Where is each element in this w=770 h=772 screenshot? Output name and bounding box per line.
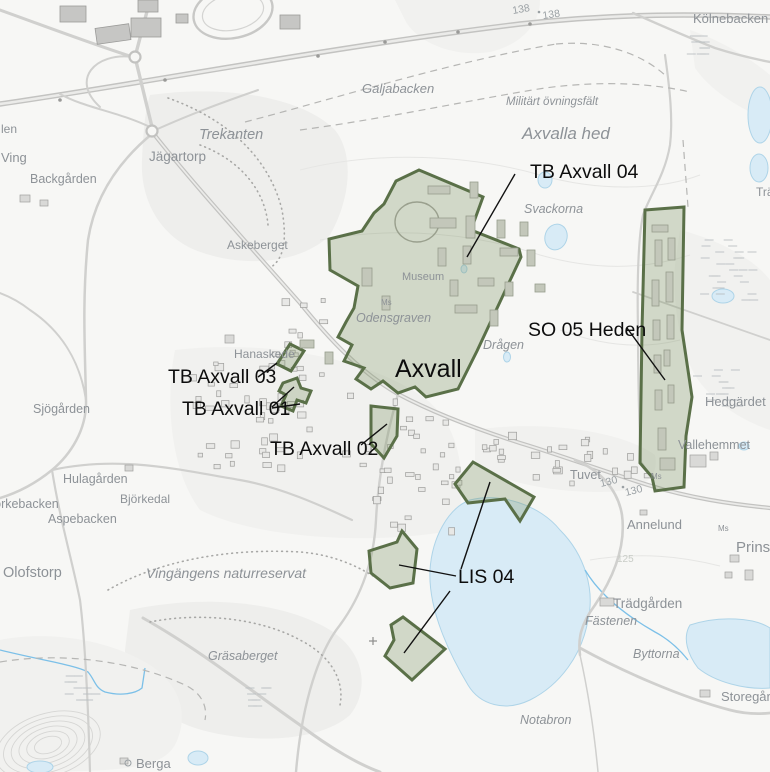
place-label: Annelund xyxy=(627,517,682,532)
place-label: Galjabacken xyxy=(362,81,434,96)
place-label: Ms xyxy=(381,298,392,307)
place-label: Drågen xyxy=(483,338,524,352)
place-label: Fästenen xyxy=(585,614,637,628)
place-label: Aspebacken xyxy=(48,512,117,526)
place-label: Backgården xyxy=(30,172,97,186)
place-label: Storegården xyxy=(721,689,770,704)
place-label: Vallehemmet xyxy=(678,438,751,452)
place-label: Björkebacken xyxy=(0,497,59,511)
zone-label-tb-axvall-01: TB Axvall 01 xyxy=(182,398,290,420)
place-label: Hulagården xyxy=(63,472,128,486)
elevation-dot xyxy=(538,11,541,14)
place-label: Ving xyxy=(1,150,27,165)
pond xyxy=(188,751,208,765)
elevation-dot xyxy=(622,486,625,489)
pond xyxy=(748,87,770,143)
place-label: Hanaskede xyxy=(234,347,295,361)
place-label: Notabron xyxy=(520,713,571,727)
town-label-axvall: Axvall xyxy=(395,355,462,383)
pond xyxy=(750,154,768,182)
zone-label-tb-axvall-03: TB Axvall 03 xyxy=(168,366,276,388)
map-screenshot: Kölnebacken Galjabacken Militärt övnings… xyxy=(0,0,770,772)
place-label: Sjögården xyxy=(33,402,90,416)
roundabout xyxy=(130,52,141,63)
place-label: Tuvet xyxy=(570,468,601,482)
place-label: Trä xyxy=(756,185,770,199)
forest-trekanten xyxy=(142,91,348,261)
place-label: Trädgården xyxy=(613,596,682,611)
pond xyxy=(712,289,734,303)
place-label: Hedgärdet xyxy=(705,394,766,409)
place-label: Odensgraven xyxy=(356,311,431,325)
zone-label-tb-axvall-02: TB Axvall 02 xyxy=(270,438,378,460)
place-label: Björkedal xyxy=(120,492,170,506)
place-label: Svackorna xyxy=(524,202,583,216)
place-label: Trekanten xyxy=(199,127,263,143)
place-label: len xyxy=(1,122,17,136)
place-label: Askeberget xyxy=(227,238,288,252)
place-label: Byttorna xyxy=(633,647,680,661)
place-label: Berga xyxy=(136,756,171,771)
pond xyxy=(27,761,53,772)
place-label: Axvalla hed xyxy=(521,124,610,143)
place-label: Vingängens naturreservat xyxy=(146,565,307,581)
zone-label-tb-axvall-04: TB Axvall 04 xyxy=(530,161,639,183)
place-label: Olofstorp xyxy=(3,565,62,581)
zone-label-so-05-heden: SO 05 Heden xyxy=(528,319,646,341)
place-label: Kölnebacken xyxy=(693,11,768,26)
place-label: Ms xyxy=(651,472,662,481)
elevation-label: 138 xyxy=(542,8,561,22)
place-label: Museum xyxy=(402,271,444,283)
place-label: Prinshaga xyxy=(736,539,770,556)
zone-label-lis-04: LIS 04 xyxy=(458,566,515,588)
contour-label: 125 xyxy=(617,554,634,565)
roundabout xyxy=(147,126,158,137)
place-label: Gräsaberget xyxy=(208,649,278,663)
pond-dragen xyxy=(504,352,511,362)
place-label: Jägartorp xyxy=(149,149,206,164)
map-canvas: Kölnebacken Galjabacken Militärt övnings… xyxy=(0,0,770,772)
place-label: Ms xyxy=(718,524,729,533)
place-label: Militärt övningsfält xyxy=(506,96,599,108)
